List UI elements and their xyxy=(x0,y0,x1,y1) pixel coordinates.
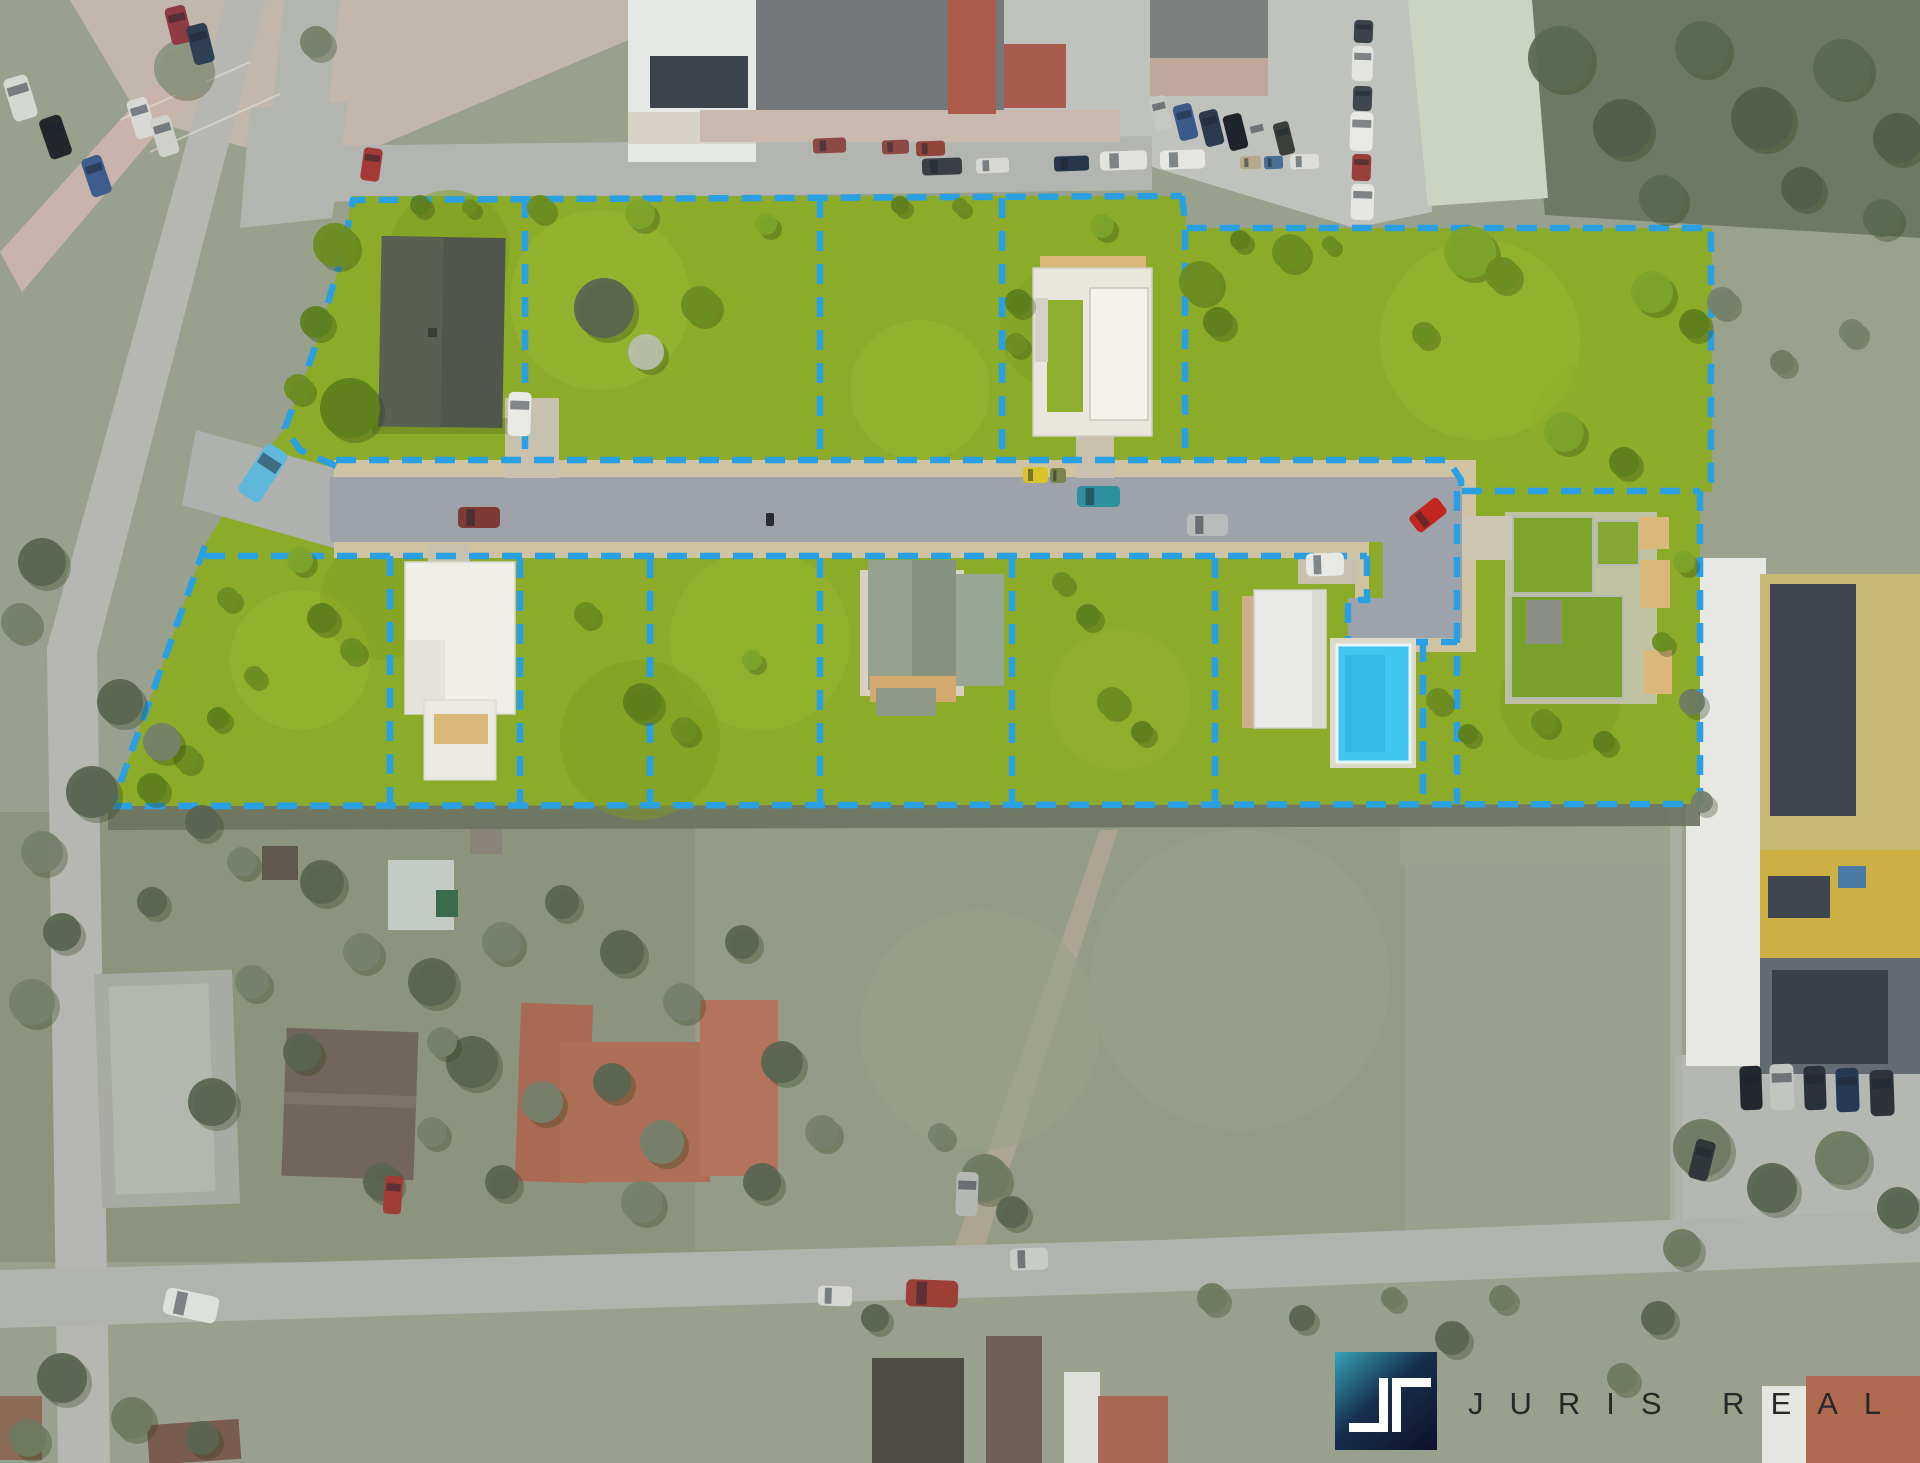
tree xyxy=(1813,39,1871,97)
car-windshield xyxy=(1806,1074,1824,1083)
house-1-chimney xyxy=(428,328,437,337)
tree xyxy=(861,1304,889,1332)
tree xyxy=(1485,257,1519,291)
car-body xyxy=(1160,149,1206,170)
tree xyxy=(545,885,579,919)
car-body xyxy=(1353,86,1373,112)
house-bottom-white xyxy=(1064,1372,1100,1463)
tree xyxy=(1663,1229,1701,1267)
car-windshield xyxy=(1169,152,1179,167)
car-windshield xyxy=(1109,153,1119,168)
car-body xyxy=(1100,150,1148,171)
car xyxy=(1187,514,1228,536)
tree xyxy=(1097,687,1127,717)
tree xyxy=(185,805,219,839)
car-body xyxy=(1187,514,1228,536)
bldg-north-east-facade xyxy=(1150,58,1268,96)
tree xyxy=(1839,319,1865,345)
tree xyxy=(1412,322,1436,346)
car-body xyxy=(1290,153,1320,169)
logo-glyph-right xyxy=(1392,1378,1431,1432)
tree xyxy=(244,666,264,686)
tree xyxy=(417,1117,447,1147)
tree xyxy=(300,26,332,58)
tree xyxy=(952,198,968,214)
house-6-green-roof-a xyxy=(1513,517,1593,593)
car-windshield xyxy=(887,142,893,152)
car xyxy=(882,140,909,155)
car-body xyxy=(916,140,946,156)
tree xyxy=(1005,289,1031,315)
tree xyxy=(66,766,118,818)
car-windshield xyxy=(1353,191,1372,199)
car-windshield xyxy=(1086,488,1095,505)
car xyxy=(38,113,73,160)
house-6-deck-b xyxy=(1640,560,1670,608)
tree xyxy=(137,887,167,917)
tree xyxy=(1631,271,1673,313)
car-body xyxy=(818,1285,853,1306)
tree xyxy=(1544,412,1584,452)
swimming-pool-depth xyxy=(1345,655,1385,752)
tree xyxy=(1675,21,1729,75)
tree xyxy=(9,979,55,1025)
car-body xyxy=(507,392,532,437)
tree xyxy=(410,195,430,215)
tree xyxy=(1289,1305,1315,1331)
tree xyxy=(185,1421,219,1455)
car-windshield xyxy=(930,160,938,173)
car xyxy=(1739,1066,1763,1111)
house-bottom-terracotta xyxy=(1098,1396,1168,1463)
car xyxy=(1240,156,1261,170)
car xyxy=(1350,184,1374,221)
car-windshield xyxy=(768,516,772,519)
car xyxy=(1349,112,1373,152)
house-5-roof-slope xyxy=(1312,590,1326,728)
bldg-right-skylight xyxy=(1838,866,1866,888)
tree xyxy=(462,199,478,215)
car-body xyxy=(383,1175,404,1214)
car-windshield xyxy=(1354,53,1371,61)
tree xyxy=(1673,551,1695,573)
car-body xyxy=(1354,20,1374,44)
aerial-photo: JURIS REAL xyxy=(0,0,1920,1463)
field-lawn-light xyxy=(1090,830,1390,1130)
house-6-pergola xyxy=(1526,600,1562,644)
tree xyxy=(1489,1285,1515,1311)
car-body xyxy=(906,1279,959,1308)
car xyxy=(1050,468,1066,483)
car-body xyxy=(1240,156,1261,170)
tree xyxy=(1272,234,1308,270)
bldg-right-panels xyxy=(1770,584,1856,816)
tree xyxy=(284,374,312,402)
car-windshield xyxy=(466,509,474,526)
car-windshield xyxy=(825,1288,832,1304)
tree xyxy=(1863,199,1901,237)
car-body xyxy=(1352,154,1372,182)
car-body xyxy=(2,73,39,122)
tree xyxy=(307,603,337,633)
tree xyxy=(427,1027,457,1057)
tree xyxy=(235,965,269,999)
car-windshield xyxy=(1742,1074,1760,1083)
tree xyxy=(1052,572,1072,592)
tree xyxy=(18,538,66,586)
tree xyxy=(1652,632,1672,652)
car-windshield xyxy=(1017,1250,1025,1268)
car-windshield xyxy=(1356,24,1371,29)
car-body xyxy=(766,513,774,526)
tree xyxy=(1593,99,1651,157)
car xyxy=(507,392,532,437)
bldg-solar-top-panels xyxy=(650,56,748,108)
tree xyxy=(625,199,655,229)
tree xyxy=(663,983,701,1021)
house-terracotta-3 xyxy=(700,1000,778,1176)
tree xyxy=(1458,724,1478,744)
car-windshield xyxy=(1355,91,1370,97)
house-4-roof-west xyxy=(868,560,912,690)
tree xyxy=(755,213,777,235)
tree xyxy=(1435,1321,1469,1355)
house-6-green-roof-b xyxy=(1597,521,1639,565)
car-body xyxy=(922,157,963,175)
tree xyxy=(891,196,909,214)
tree xyxy=(343,933,381,971)
juris-real-logo-text: JURIS REAL xyxy=(1468,1386,1907,1422)
tree xyxy=(1131,721,1153,743)
house-terracotta-2 xyxy=(560,1042,710,1182)
car xyxy=(766,513,774,526)
tree xyxy=(207,707,229,729)
car-windshield xyxy=(1772,1073,1792,1083)
tree xyxy=(1426,688,1450,712)
tree xyxy=(1230,230,1250,250)
tree xyxy=(725,925,759,959)
tree xyxy=(574,278,634,338)
tree xyxy=(408,958,456,1006)
car-windshield xyxy=(1296,156,1302,167)
car-body xyxy=(1869,1070,1895,1117)
car-windshield xyxy=(1313,555,1321,574)
tree xyxy=(623,683,661,721)
tree xyxy=(1593,731,1615,753)
car-windshield xyxy=(958,1180,976,1189)
car-body xyxy=(1769,1064,1795,1111)
tree xyxy=(996,1196,1028,1228)
car-windshield xyxy=(819,140,826,151)
tree xyxy=(227,847,257,877)
tree xyxy=(1609,447,1639,477)
tree xyxy=(188,1078,236,1126)
tree xyxy=(1679,689,1705,715)
car-body xyxy=(1835,1068,1860,1113)
garden-shed xyxy=(262,846,298,880)
car-windshield xyxy=(916,1281,927,1304)
car-windshield xyxy=(1053,470,1056,481)
tree xyxy=(1005,333,1027,355)
car-windshield xyxy=(1028,469,1033,481)
car xyxy=(1264,156,1283,170)
tree xyxy=(313,223,357,267)
car xyxy=(2,73,39,122)
garden-lawn xyxy=(860,910,1100,1150)
car xyxy=(458,507,500,528)
car-body xyxy=(1306,552,1345,576)
house-2-roof-slab xyxy=(1090,288,1148,420)
car xyxy=(1100,150,1148,171)
house-2-garage xyxy=(1035,298,1048,362)
car-windshield xyxy=(1352,119,1371,127)
house-4-roof-east xyxy=(912,560,956,690)
car-body xyxy=(1010,1247,1049,1270)
car-body xyxy=(1023,467,1048,483)
tree xyxy=(743,1163,781,1201)
bldg-green-hall xyxy=(1408,0,1548,206)
tree xyxy=(111,1397,153,1439)
car-body xyxy=(1349,112,1373,152)
car xyxy=(916,140,946,156)
tree xyxy=(1528,26,1592,90)
tree xyxy=(300,860,344,904)
tree xyxy=(9,1419,47,1457)
bldg-hall-facade xyxy=(700,110,1120,142)
juris-real-logo-mark xyxy=(1335,1352,1437,1450)
tree xyxy=(320,378,380,438)
tree xyxy=(340,638,364,662)
tree xyxy=(593,1063,631,1101)
tree xyxy=(1815,1131,1869,1185)
tree xyxy=(1090,214,1114,238)
car-windshield xyxy=(1872,1079,1892,1089)
tree xyxy=(37,1353,87,1403)
car xyxy=(1160,149,1206,170)
tree xyxy=(1076,604,1100,628)
car xyxy=(1306,552,1345,576)
tree xyxy=(1639,175,1685,221)
tree xyxy=(1691,791,1713,813)
tree xyxy=(671,717,697,743)
garden-playhouse xyxy=(436,890,458,917)
car xyxy=(1869,1070,1895,1117)
car-body xyxy=(976,157,1010,173)
bldg-tile-small xyxy=(1004,44,1066,108)
car xyxy=(1054,155,1090,171)
tree xyxy=(1707,287,1737,317)
car-windshield xyxy=(386,1183,400,1192)
aerial-canvas xyxy=(0,0,1920,1463)
car xyxy=(1803,1066,1827,1111)
tree xyxy=(1381,1287,1403,1309)
car xyxy=(1354,20,1374,44)
tree xyxy=(1679,309,1709,339)
car xyxy=(383,1175,404,1214)
street-intersection xyxy=(240,102,348,228)
car-body xyxy=(1351,46,1373,82)
tree xyxy=(1747,1163,1797,1213)
car xyxy=(922,157,963,175)
car-body xyxy=(1077,486,1120,507)
tree xyxy=(1531,709,1557,735)
grass-patch xyxy=(850,320,990,460)
tree xyxy=(287,547,313,573)
car-windshield xyxy=(922,143,928,154)
car xyxy=(1010,1247,1049,1270)
tree xyxy=(43,913,81,951)
car-windshield xyxy=(1268,158,1272,167)
car-body xyxy=(1054,155,1090,171)
tree xyxy=(143,723,181,761)
car-windshield xyxy=(1354,159,1369,165)
car xyxy=(1290,153,1320,169)
car-windshield xyxy=(1061,158,1068,169)
logo-glyph-left xyxy=(1349,1378,1388,1432)
bldg-tile-section xyxy=(948,0,996,114)
tree xyxy=(521,1081,563,1123)
car-windshield xyxy=(1838,1076,1857,1085)
car-body xyxy=(1739,1066,1763,1111)
car xyxy=(1351,46,1373,82)
car xyxy=(1077,486,1120,507)
tree xyxy=(1322,236,1338,252)
tree xyxy=(283,1033,321,1071)
car xyxy=(976,157,1010,173)
tree xyxy=(628,334,664,370)
tree xyxy=(21,831,63,873)
car xyxy=(1352,154,1372,182)
car xyxy=(955,1172,979,1217)
car xyxy=(1023,467,1048,483)
garden-hut xyxy=(470,826,502,854)
tree xyxy=(621,1181,663,1223)
car-windshield xyxy=(1244,158,1249,167)
car-windshield xyxy=(982,160,989,171)
car-body xyxy=(1803,1066,1827,1111)
car-body xyxy=(38,113,73,160)
tree xyxy=(485,1165,519,1199)
tree xyxy=(805,1115,839,1149)
tree xyxy=(137,773,167,803)
bldg-right-yellow-panels xyxy=(1768,876,1830,918)
house-4-garage-roof xyxy=(956,574,1004,686)
car xyxy=(906,1279,959,1308)
tree xyxy=(600,930,644,974)
car-body xyxy=(458,507,500,528)
tree xyxy=(527,195,553,221)
house-bottom-gable xyxy=(872,1358,964,1463)
tree xyxy=(1179,261,1221,303)
car-body xyxy=(1264,156,1283,170)
house-2-courtyard xyxy=(1047,300,1083,412)
tree xyxy=(482,922,522,962)
tree xyxy=(1641,1301,1675,1335)
car xyxy=(818,1285,853,1306)
tree xyxy=(97,679,143,725)
house-4-porch-roof xyxy=(876,688,936,716)
tree xyxy=(1877,1187,1919,1229)
tree xyxy=(1203,307,1233,337)
car-windshield xyxy=(1195,516,1203,534)
tree xyxy=(681,286,719,324)
tree xyxy=(1731,87,1793,149)
car-body xyxy=(1350,184,1374,221)
bldg-north-east xyxy=(1150,0,1268,60)
car xyxy=(1353,86,1373,112)
car-windshield xyxy=(510,400,529,409)
house-3-patio xyxy=(434,714,488,744)
car-body xyxy=(1050,468,1066,483)
tree xyxy=(761,1041,803,1083)
tree xyxy=(574,602,598,626)
car-body xyxy=(882,140,909,155)
tree xyxy=(1,603,39,641)
tree xyxy=(742,650,762,670)
tree xyxy=(217,587,239,609)
car xyxy=(813,137,847,153)
car xyxy=(1835,1068,1860,1113)
tree xyxy=(300,306,332,338)
tree xyxy=(1770,350,1794,374)
bldg-right-gray-panels xyxy=(1772,970,1888,1064)
car xyxy=(1769,1064,1795,1111)
tree xyxy=(1197,1283,1227,1313)
car-body xyxy=(955,1172,979,1217)
tree xyxy=(928,1123,952,1147)
house-6-deck-a xyxy=(1639,517,1669,549)
tree xyxy=(640,1120,684,1164)
tree xyxy=(1781,167,1823,209)
car-body xyxy=(813,137,847,153)
house-bottom-brown xyxy=(986,1336,1042,1463)
